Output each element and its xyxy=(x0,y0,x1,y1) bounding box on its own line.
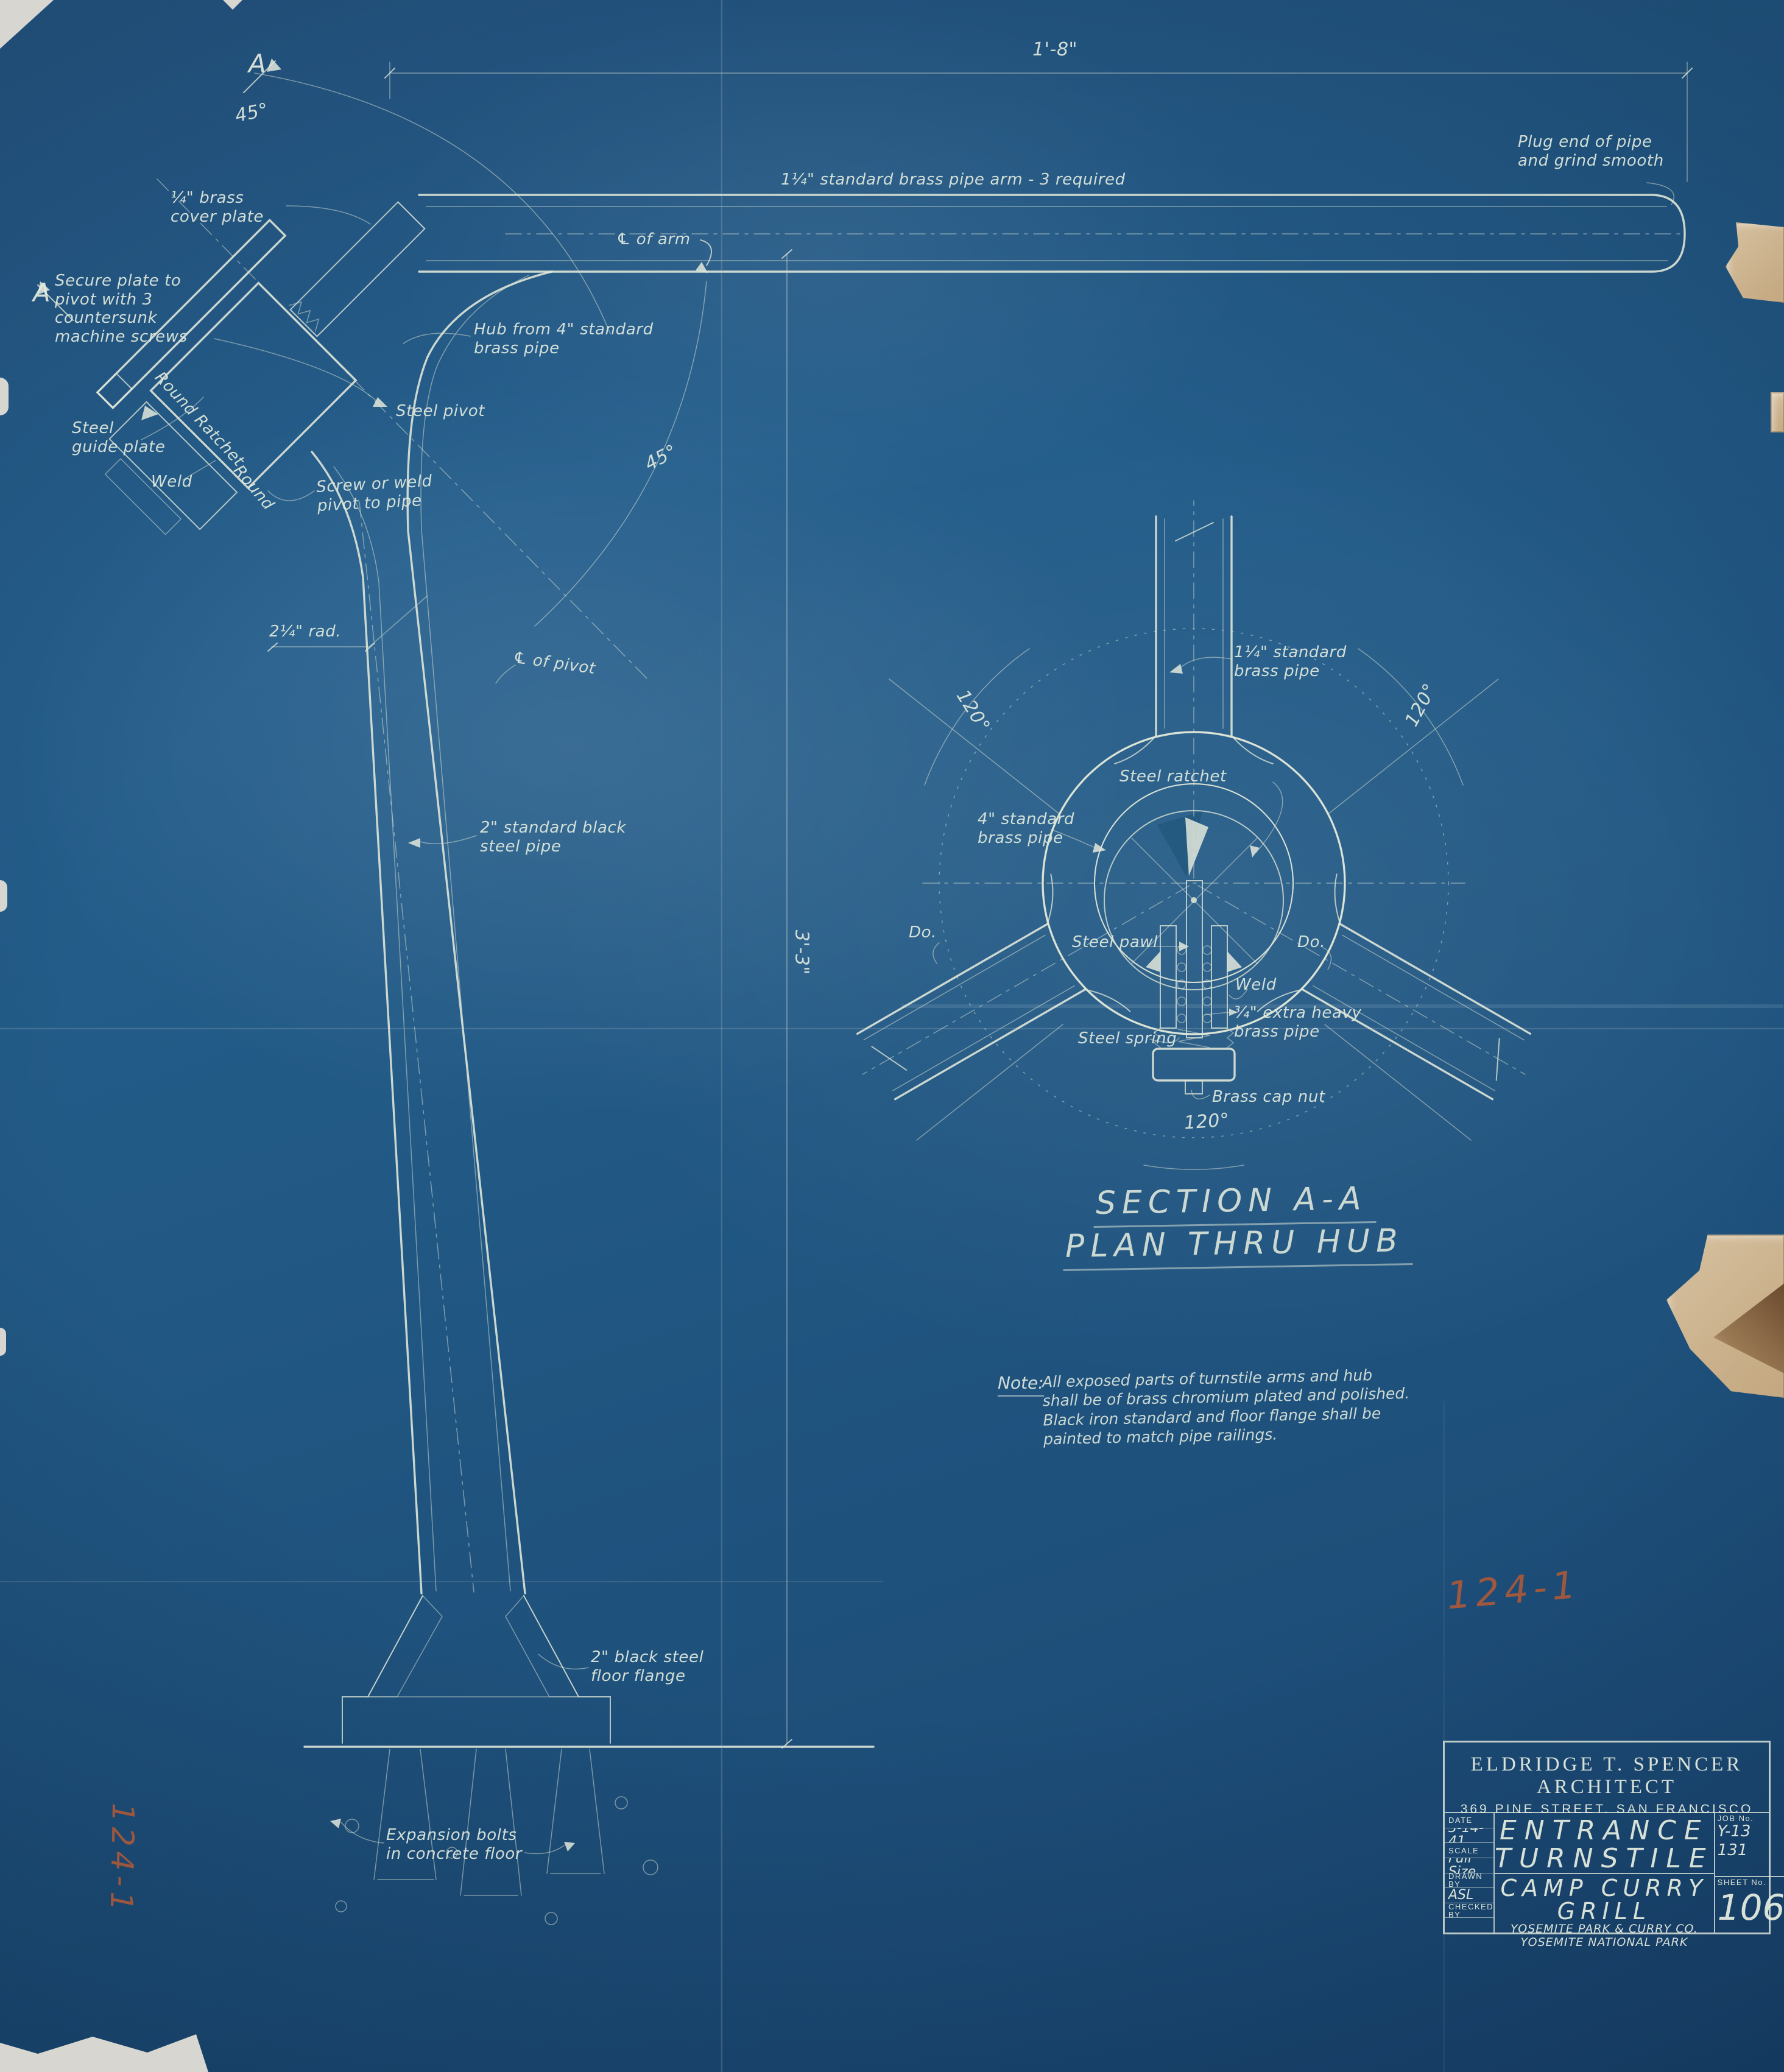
label-floor-flange: 2" black steel floor flange xyxy=(591,1648,703,1685)
project-name-line2: GRILL xyxy=(1495,1900,1714,1923)
label-plan-arm-pipe: 1¼" standard brass pipe xyxy=(1234,643,1347,680)
drawing-title-line2: TURNSTILE xyxy=(1495,1845,1714,1873)
label-secure-plate: Secure plate to pivot with 3 countersunk… xyxy=(55,272,188,347)
drawing-title-line1: ENTRANCE xyxy=(1495,1817,1714,1845)
plan-title: PLAN THRU HUB xyxy=(1062,1224,1412,1271)
torn-sliver-right xyxy=(1771,392,1784,432)
label-steel-spring: Steel spring xyxy=(1078,1029,1177,1048)
label-guide-plate: Steel guide plate xyxy=(72,419,165,456)
label-do-left: Do. xyxy=(909,923,937,942)
dim-radius: 2¼" rad. xyxy=(269,622,341,641)
red-stamp-number-vertical: 124-1 xyxy=(105,1803,138,1943)
dim-arm-length: 1'-8" xyxy=(1032,39,1077,60)
job-number-line2: 131 xyxy=(1718,1841,1784,1860)
dim-height: 3'-3" xyxy=(791,930,812,986)
job-number-line1: Y-13 xyxy=(1718,1822,1784,1841)
label-expansion-bolts: Expansion bolts in concrete floor xyxy=(386,1826,522,1863)
note-label: Note: xyxy=(998,1374,1044,1397)
section-marker-a-top: A xyxy=(249,51,266,77)
label-steel-pivot: Steel pivot xyxy=(396,402,485,421)
scale-value: Full Size xyxy=(1445,1858,1493,1873)
label-spring-pipe: ¾" extra heavy brass pipe xyxy=(1234,1004,1361,1041)
label-brass-cap-nut: Brass cap nut xyxy=(1212,1088,1325,1107)
plan-drawing xyxy=(823,501,1783,1169)
sheet-number-label: SHEET No. xyxy=(1718,1878,1784,1886)
title-block-header: ELDRIDGE T. SPENCER ARCHITECT 369 PINE S… xyxy=(1445,1743,1769,1812)
drawn-by-value: ASL xyxy=(1445,1888,1493,1903)
label-do-right: Do. xyxy=(1297,933,1325,952)
label-plan-hub-pipe: 4" standard brass pipe xyxy=(978,810,1074,847)
date-value: 3-14-41 xyxy=(1445,1828,1493,1844)
label-centerline-arm: ℄ of arm xyxy=(616,230,691,249)
label-hub-from: Hub from 4" standard brass pipe xyxy=(474,320,654,358)
title-block-right-column: JOB No. Y-13 131 SHEET No. 106 xyxy=(1715,1813,1784,1933)
red-stamp-number: 124-1 xyxy=(1445,1566,1582,1615)
elevation-drawing xyxy=(38,58,1692,1925)
drawn-by-label: DRAWN BY xyxy=(1445,1873,1493,1889)
label-steel-ratchet: Steel ratchet xyxy=(1119,767,1227,786)
title-block-middle-column: ENTRANCE TURNSTILE CAMP CURRY GRILL YOSE… xyxy=(1495,1813,1715,1933)
project-name-line1: CAMP CURRY xyxy=(1495,1876,1714,1900)
date-label: DATE xyxy=(1445,1813,1493,1828)
label-weld-plan: Weld xyxy=(1235,976,1277,995)
blueprint-scan: 1'-8" Plug end of pipe and grind smooth … xyxy=(0,0,1784,2072)
edge-nick-3 xyxy=(0,1328,6,1356)
label-arm-pipe: 1¼" standard brass pipe arm - 3 required xyxy=(781,171,1126,189)
label-cover-plate: ¼" brass cover plate xyxy=(171,189,264,226)
section-marker-a-bottom: A xyxy=(33,280,51,306)
owner-line2: YOSEMITE NATIONAL PARK xyxy=(1495,1936,1714,1950)
title-block-left-column: DATE 3-14-41 SCALE Full Size DRAWN BY AS… xyxy=(1445,1813,1495,1933)
title-block: ELDRIDGE T. SPENCER ARCHITECT 369 PINE S… xyxy=(1443,1741,1771,1934)
torn-fold-shadow xyxy=(1713,1283,1784,1373)
blueprint-paper: 1'-8" Plug end of pipe and grind smooth … xyxy=(0,0,1784,2072)
note-text: All exposed parts of turnstile arms and … xyxy=(1042,1363,1482,1448)
scale-label: SCALE xyxy=(1445,1843,1493,1858)
edge-nick-2 xyxy=(0,880,7,912)
owner-line1: YOSEMITE PARK & CURRY CO. xyxy=(1495,1923,1714,1936)
label-weld-elevation: Weld xyxy=(151,473,192,492)
architect-name: ELDRIDGE T. SPENCER ARCHITECT xyxy=(1445,1753,1769,1799)
sheet-number-value: 106 xyxy=(1718,1890,1784,1925)
edge-nick-1 xyxy=(0,378,9,415)
label-angle-120-bottom: 120° xyxy=(1183,1109,1230,1134)
checked-by-value xyxy=(1445,1918,1493,1933)
label-steel-pawl: Steel pawl xyxy=(1072,933,1158,952)
section-title: SECTION A-A xyxy=(1093,1182,1376,1228)
job-number-label: JOB No. xyxy=(1718,1814,1784,1822)
label-plug-end: Plug end of pipe and grind smooth xyxy=(1518,133,1664,170)
label-post-pipe: 2" standard black steel pipe xyxy=(480,819,626,856)
label-screw-weld: Screw or weld pivot to pipe xyxy=(316,472,434,515)
checked-by-label: CHECKED BY xyxy=(1445,1903,1493,1919)
